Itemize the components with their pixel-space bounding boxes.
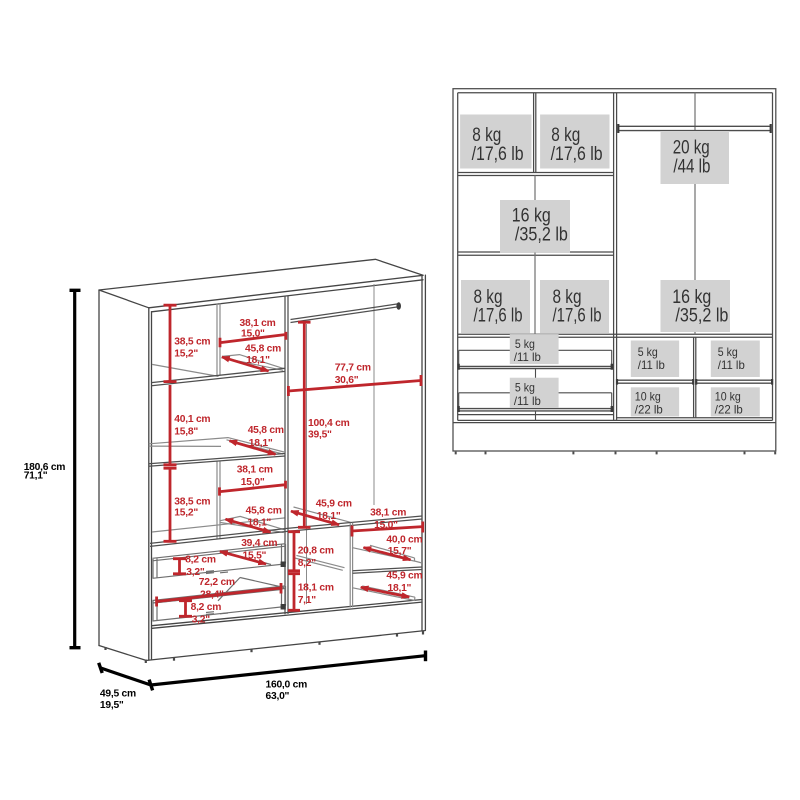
svg-text:49,5 cm: 49,5 cm [100,689,136,700]
svg-text:15,5": 15,5" [243,550,267,561]
svg-text:39,5": 39,5" [308,430,332,441]
svg-text:40,1 cm: 40,1 cm [174,414,210,425]
svg-text:18,1": 18,1" [388,583,412,594]
svg-text:15,0": 15,0" [374,520,398,531]
svg-text:20,8 cm: 20,8 cm [298,546,334,557]
svg-text:38,1 cm: 38,1 cm [370,508,406,519]
svg-text:38,5 cm: 38,5 cm [174,336,210,347]
svg-text:3,2": 3,2" [186,567,205,578]
svg-text:45,9 cm: 45,9 cm [386,571,422,582]
svg-text:15,0": 15,0" [241,329,265,340]
svg-text:/11 lb: /11 lb [514,394,541,408]
svg-text:45,8 cm: 45,8 cm [245,344,281,355]
svg-text:39,4 cm: 39,4 cm [241,538,277,549]
svg-text:/17,6 lb: /17,6 lb [551,144,603,165]
svg-text:63,0": 63,0" [266,691,290,702]
svg-text:/11 lb: /11 lb [514,350,541,364]
svg-text:16 kg: 16 kg [512,206,551,227]
svg-text:38,1 cm: 38,1 cm [240,318,276,329]
svg-text:/11 lb: /11 lb [718,358,745,372]
svg-text:/35,2 lb: /35,2 lb [515,225,568,246]
svg-text:160,0 cm: 160,0 cm [266,680,308,691]
svg-text:5 kg: 5 kg [638,345,658,359]
svg-text:100,4 cm: 100,4 cm [308,418,350,429]
svg-text:5 kg: 5 kg [515,381,535,395]
svg-text:7,1": 7,1" [298,595,317,606]
svg-text:3,2": 3,2" [192,615,211,626]
svg-text:38,1 cm: 38,1 cm [237,465,273,476]
svg-text:/17,6 lb: /17,6 lb [472,144,524,165]
svg-text:8,2": 8,2" [298,558,317,569]
svg-text:28,4": 28,4" [200,590,224,601]
svg-text:18,1 cm: 18,1 cm [298,583,334,594]
svg-text:8,2 cm: 8,2 cm [185,554,216,565]
svg-text:15,2": 15,2" [174,349,198,360]
svg-text:30,6": 30,6" [335,375,359,386]
svg-text:/22 lb: /22 lb [715,403,743,417]
svg-text:18,1": 18,1" [317,511,341,522]
svg-text:8 kg: 8 kg [551,125,580,146]
svg-text:/17,6 lb: /17,6 lb [474,306,523,327]
svg-text:40,0 cm: 40,0 cm [386,535,422,546]
svg-text:15,7": 15,7" [388,546,412,557]
svg-text:/17,6 lb: /17,6 lb [553,306,602,327]
svg-text:77,7 cm: 77,7 cm [335,363,371,374]
svg-text:/22 lb: /22 lb [635,403,663,417]
svg-text:18,1": 18,1" [249,438,273,449]
svg-text:/35,2 lb: /35,2 lb [675,306,728,327]
svg-text:45,9 cm: 45,9 cm [316,498,352,509]
svg-text:15,2": 15,2" [174,508,198,519]
svg-text:10 kg: 10 kg [715,390,741,404]
svg-text:18,1": 18,1" [247,518,271,529]
svg-text:/44 lb: /44 lb [673,156,710,177]
svg-text:45,8 cm: 45,8 cm [246,506,282,517]
svg-text:72,2 cm: 72,2 cm [199,577,235,588]
svg-text:5 kg: 5 kg [718,345,738,359]
svg-text:15,8": 15,8" [174,427,198,438]
svg-text:/11 lb: /11 lb [638,358,665,372]
svg-text:8,2 cm: 8,2 cm [191,602,222,613]
svg-text:19,5": 19,5" [100,700,124,711]
svg-text:18,1": 18,1" [246,355,270,366]
svg-text:5 kg: 5 kg [515,337,535,351]
svg-text:10 kg: 10 kg [635,390,661,404]
svg-text:20 kg: 20 kg [673,138,710,159]
svg-text:71,1": 71,1" [24,471,48,482]
svg-text:15,0": 15,0" [241,477,265,488]
svg-text:38,5 cm: 38,5 cm [174,497,210,508]
svg-text:8 kg: 8 kg [472,125,501,146]
svg-text:45,8 cm: 45,8 cm [248,425,284,436]
